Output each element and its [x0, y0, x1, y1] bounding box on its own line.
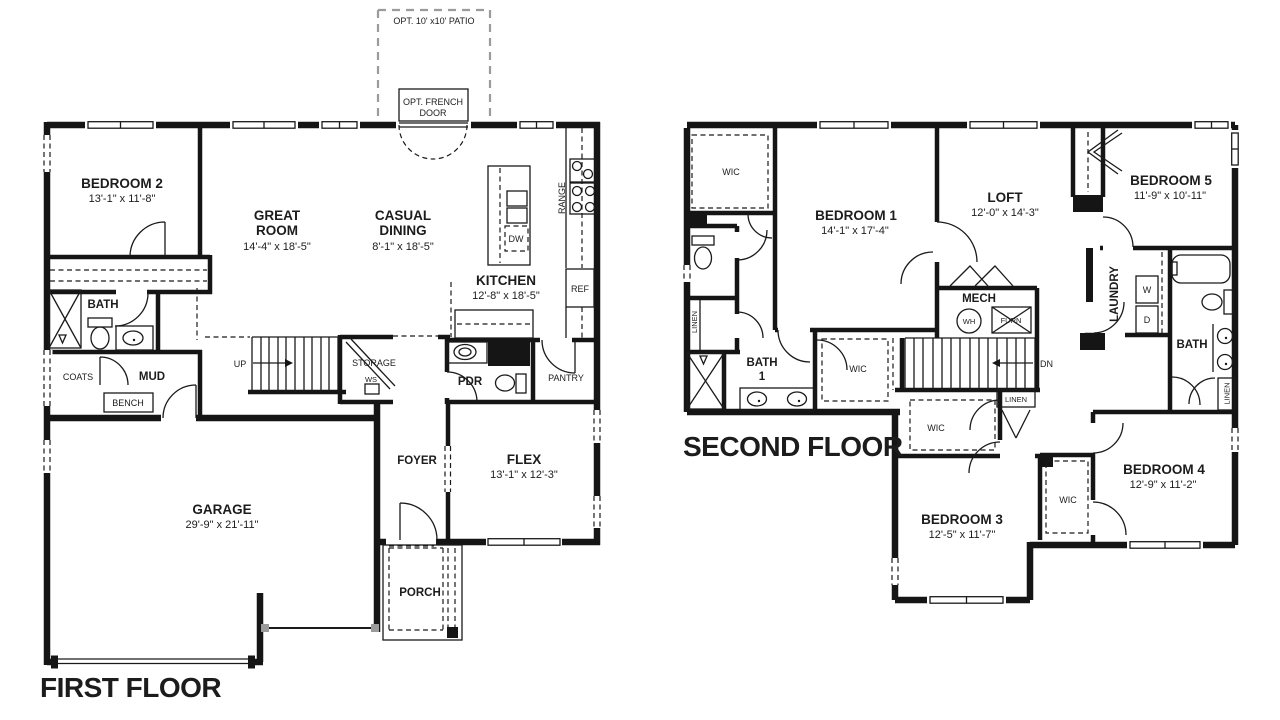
room-dims-bedroom-1: 14'-1" x 17'-4" — [821, 225, 889, 237]
kitchen-sink-icon — [570, 159, 596, 182]
shower-icon — [49, 290, 81, 348]
room-label-foyer: FOYER — [397, 455, 437, 467]
room-label-great-room-2: ROOM — [256, 223, 298, 238]
linen-door — [1002, 410, 1030, 438]
room-label-garage: GARAGE — [192, 502, 251, 517]
room-label-bath2: BATH — [1176, 339, 1207, 351]
floor-plan-canvas: OPT. 10' x10' PATIO OPT. FRENCH DOOR BED… — [0, 0, 1280, 720]
room-dims-bedroom-4: 12'-9" x 11'-2" — [1130, 479, 1197, 491]
room-label-casual-dining-2: DINING — [379, 223, 426, 238]
room-dims-bedroom-5: 11'-9" x 10'-11" — [1134, 190, 1206, 202]
first-floor-plan: OPT. 10' x10' PATIO OPT. FRENCH DOOR BED… — [40, 10, 603, 703]
second-floor-title: SECOND FLOOR — [683, 431, 903, 462]
water-softener-label: WS — [365, 375, 377, 384]
kitchen-island — [488, 166, 530, 265]
room-label-loft: LOFT — [987, 190, 1023, 205]
room-label-bedroom-1: BEDROOM 1 — [815, 208, 897, 223]
toilet-icon — [496, 374, 527, 393]
ff-plumbing-chase — [488, 340, 530, 366]
linen-label: LINEN — [690, 311, 699, 333]
room-label-kitchen: KITCHEN — [476, 273, 536, 288]
washer-label: W — [1143, 285, 1152, 295]
wic-label: WIC — [849, 364, 867, 374]
second-floor-plan: WIC BEDROOM 1 14'-1" x 17'-4" LOFT 12'-0… — [682, 118, 1242, 607]
toilet-icon — [88, 318, 112, 349]
stairs-down-label: DN — [1040, 359, 1053, 369]
toilet-icon — [692, 236, 714, 269]
refrigerator-label: REF — [571, 284, 590, 294]
shower-icon — [687, 353, 724, 409]
coats-label: COATS — [63, 372, 93, 382]
room-dims-casual-dining: 8'-1" x 18'-5" — [372, 241, 434, 253]
room-label-mud: MUD — [139, 371, 165, 383]
room-label-bath1: BATH — [746, 357, 777, 369]
french-door-label2: DOOR — [420, 108, 448, 118]
room-label-casual-dining-1: CASUAL — [375, 208, 431, 223]
stairs-down-icon — [893, 338, 1035, 390]
water-softener-icon — [365, 384, 379, 394]
room-label-laundry: LAUNDRY — [1109, 266, 1121, 322]
wic-label: WIC — [722, 167, 740, 177]
dishwasher-label: DW — [509, 234, 524, 244]
linen-label: LINEN — [1223, 382, 1232, 404]
kitchen-counters — [451, 128, 582, 338]
room-dims-great-room: 14'-4" x 18'-5" — [243, 241, 311, 253]
room-label-great-room-1: GREAT — [254, 208, 301, 223]
range-label: RANGE — [557, 182, 567, 214]
room-label-bath1-num: 1 — [759, 371, 766, 383]
french-door-label: OPT. FRENCH — [403, 97, 463, 107]
room-dims-garage: 29'-9" x 21'-11" — [186, 519, 259, 531]
patio-label: OPT. 10' x10' PATIO — [393, 16, 474, 26]
room-label-pdr: PDR — [458, 376, 483, 388]
room-dims-loft: 12'-0" x 14'-3" — [971, 207, 1039, 219]
sink-icon — [447, 342, 487, 363]
room-label-bedroom-2: BEDROOM 2 — [81, 176, 163, 191]
room-label-mech: MECH — [962, 293, 996, 305]
room-label-flex: FLEX — [507, 452, 542, 467]
double-vanity-icon — [1213, 324, 1233, 372]
toilet-icon — [1202, 290, 1233, 314]
room-dims-flex: 13'-1" x 12'-3" — [490, 469, 558, 481]
storage-label: STORAGE — [352, 358, 396, 368]
stairs-up-label: UP — [234, 359, 247, 369]
dryer-label: D — [1144, 315, 1151, 325]
room-label-bedroom-5: BEDROOM 5 — [1130, 173, 1212, 188]
first-floor-title: FIRST FLOOR — [40, 672, 221, 703]
bench-label: BENCH — [112, 398, 144, 408]
furnace-label: FURN — [1001, 316, 1022, 325]
room-label-bedroom-4: BEDROOM 4 — [1123, 462, 1205, 477]
linen-label: LINEN — [1005, 395, 1027, 404]
room-label-porch: PORCH — [399, 587, 441, 599]
double-vanity-icon — [740, 388, 815, 410]
bathtub-icon — [1172, 255, 1230, 283]
post-marker — [261, 624, 269, 632]
water-heater-label: WH — [963, 317, 976, 326]
room-label-bath: BATH — [87, 299, 118, 311]
floor-plan-page: OPT. 10' x10' PATIO OPT. FRENCH DOOR BED… — [0, 0, 1280, 720]
sink-icon — [116, 326, 153, 350]
pantry-label: PANTRY — [548, 373, 584, 383]
room-dims-bedroom-3: 12'-5" x 11'-7" — [929, 529, 996, 541]
wic-label: WIC — [1059, 495, 1077, 505]
post-marker — [371, 624, 379, 632]
room-dims-kitchen: 12'-8" x 18'-5" — [472, 290, 540, 302]
stairs-up-icon — [252, 337, 338, 392]
room-label-bedroom-3: BEDROOM 3 — [921, 512, 1003, 527]
room-dims-bedroom-2: 13'-1" x 11'-8" — [89, 193, 156, 205]
wic-label: WIC — [927, 423, 945, 433]
range-icon — [570, 183, 597, 214]
